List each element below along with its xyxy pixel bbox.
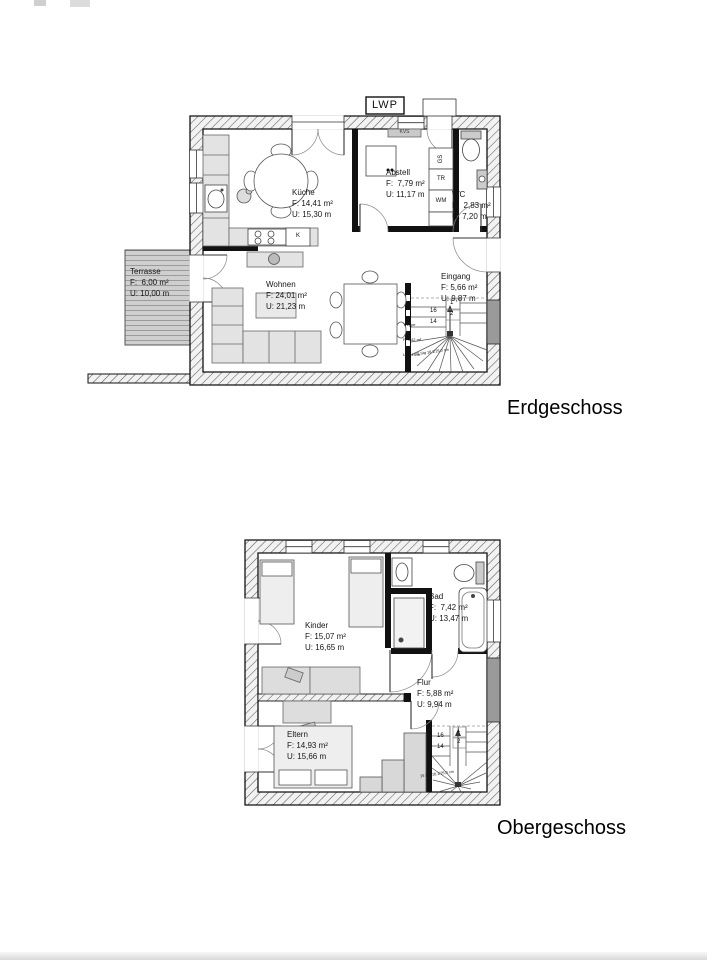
fridge-label: K (286, 233, 310, 239)
tr-appliance-label: TR (429, 176, 453, 182)
og-stair-number-16: 16 (437, 733, 444, 740)
exterior-wall-strip (88, 374, 203, 383)
upper-floor-title: Obergeschoss (497, 817, 626, 840)
og-wardrobe (360, 733, 426, 792)
screenshot-artifact (34, 0, 46, 6)
room-label-bad: Bad F: 7,42 m² U: 13,47 m (429, 591, 468, 624)
upper-floor-plan (244, 540, 500, 805)
room-label-kueche: Küche F: 14,41 m² U: 15,30 m (292, 187, 333, 220)
room-label-wohnen: Wohnen F: 24,01 m² U: 21,23 m (266, 279, 307, 312)
lwp-label: LWP (366, 97, 404, 114)
room-label-kinder: Kinder F: 15,07 m² U: 16,65 m (305, 620, 346, 653)
og-stair-number-2: 2 (457, 739, 460, 746)
kvs-label: KVS (388, 128, 421, 137)
gf-wc-fixtures (461, 131, 487, 189)
room-label-terrasse: Terrasse F: 6,00 m² U: 10,00 m (130, 266, 169, 299)
room-label-eingang: Eingang F: 5,66 m² U: 9,87 m (441, 271, 477, 304)
screenshot-bottom-fade (0, 952, 707, 960)
room-label-flur: Flur F: 5,88 m² U: 9,94 m (417, 677, 453, 710)
og-stair-number-1: 1 (457, 728, 460, 735)
room-label-eltern: Eltern F: 14,93 m² U: 15,66 m (287, 729, 328, 762)
ground-floor-plan (88, 97, 501, 385)
gf-stairs (411, 298, 487, 372)
gf-living-furniture (212, 252, 406, 363)
og-stair-number-14: 14 (437, 744, 444, 751)
gf-stair-number-1: 1 (450, 300, 453, 307)
gf-stair-number-16: 16 (430, 308, 437, 315)
room-label-abstell: Abstell F: 7,79 m² U: 11,17 m (386, 167, 425, 200)
screenshot-artifact (70, 0, 90, 7)
ground-floor-title: Erdgeschoss (507, 397, 623, 420)
gs-appliance-label: GS (435, 149, 447, 169)
floorplan-page: LWP KVS GS TR WM K Küche F: 14,41 m² U: … (0, 0, 707, 960)
wm-appliance-label: WM (429, 198, 453, 204)
room-label-wc: WC F: 2,83 m² U: 7,20 m (452, 189, 491, 222)
gf-stair-number-14: 14 (430, 319, 437, 326)
floorplan-drawing (0, 0, 707, 960)
gf-stair-number-2: 2 (450, 311, 453, 318)
